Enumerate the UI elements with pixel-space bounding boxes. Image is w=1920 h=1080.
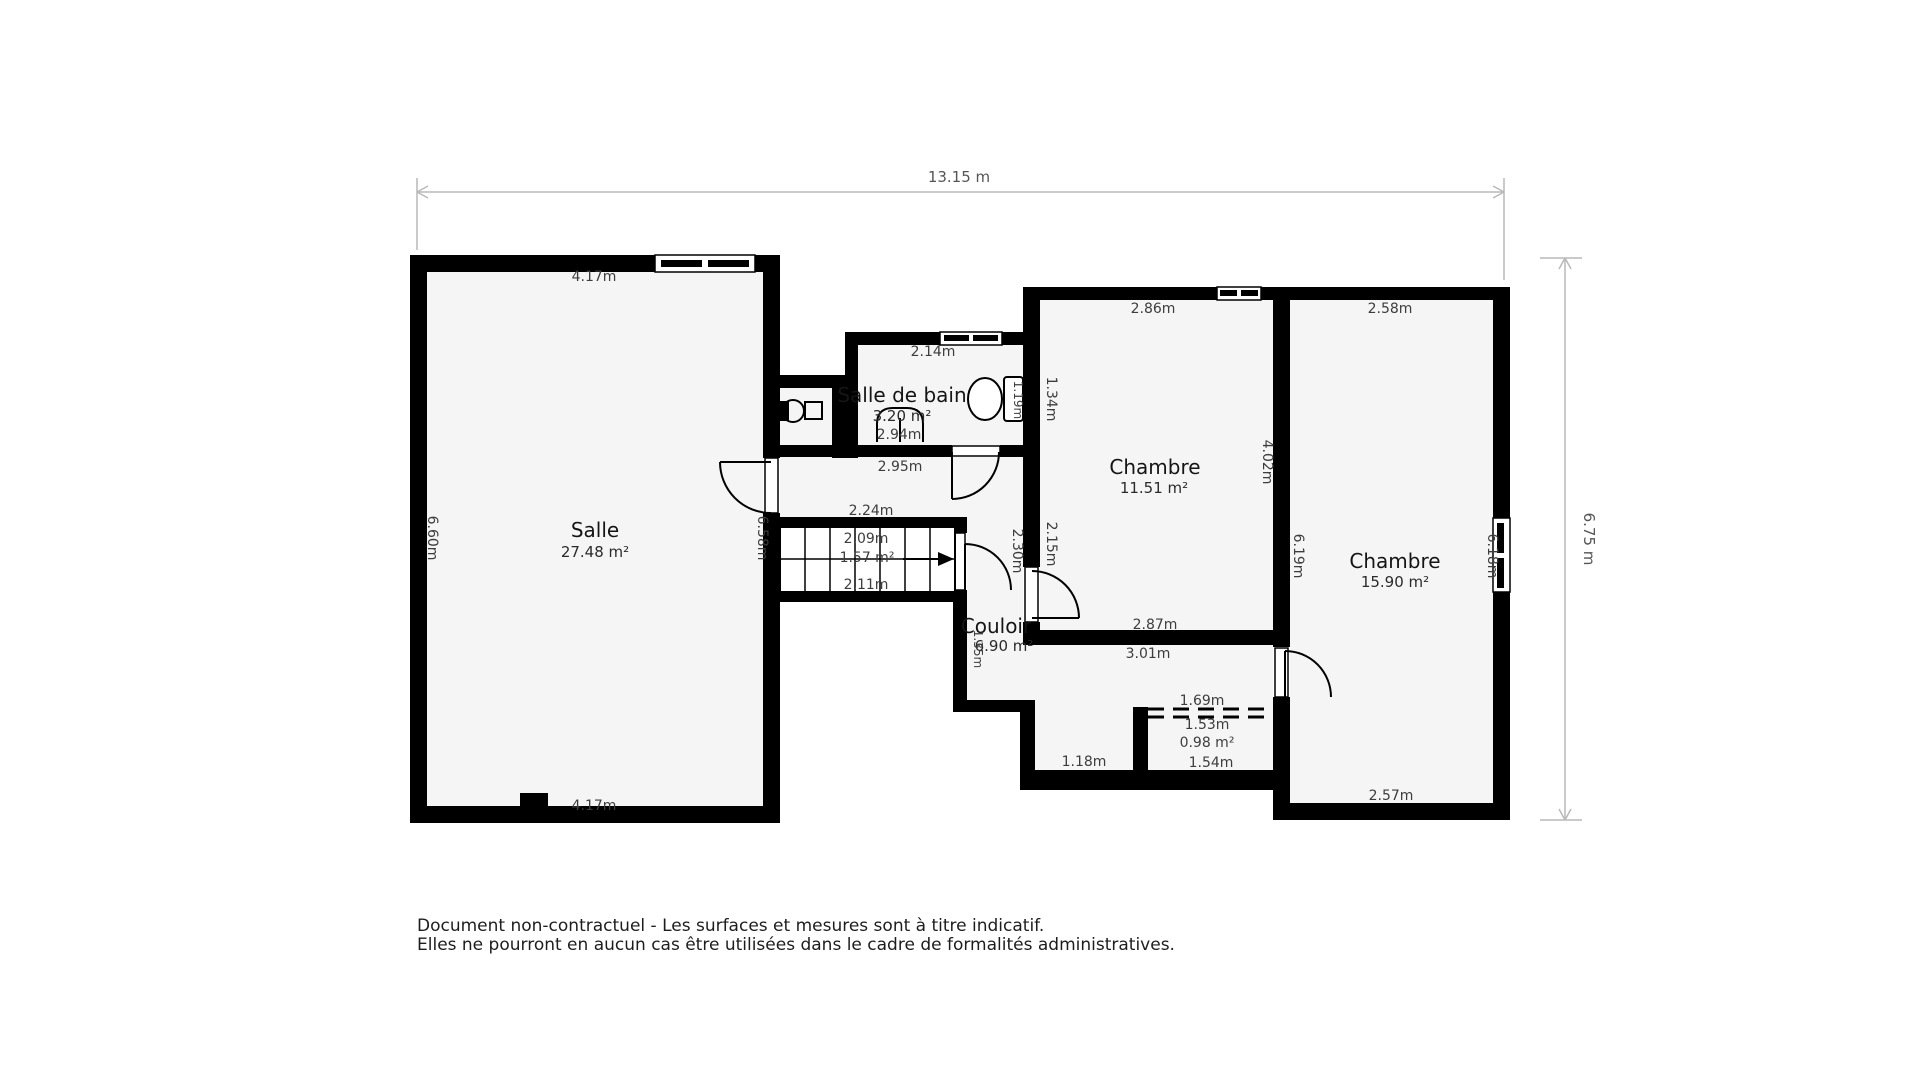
chambre-1-dim-left-upper: 1.34m [1043,377,1059,422]
chambre-2-name-label: Chambre [1349,549,1440,573]
placard-dim-width-bottom: 1.54m [1189,755,1234,771]
couloir-dim-right: 2.30m [1009,529,1025,574]
placard-dim-width-top: 1.53m [1185,717,1230,733]
escalier-area-label: 1.57 m² [840,550,895,566]
salle-window [655,255,755,272]
salle-de-bain-name-label: Salle de bain [837,383,966,407]
chambre-1-area-label: 11.51 m² [1120,479,1188,497]
chambre-1-name-label: Chambre [1109,455,1200,479]
disclaimer-line-2: Elles ne pourront en aucun cas être util… [417,936,1175,955]
chambre-2-dim-left: 6.19m [1290,534,1306,579]
escalier-dim-bottom: 2.11m [844,577,889,593]
chambre-1-dim-top: 2.86m [1131,301,1176,317]
chambre-1-window [1217,287,1261,300]
sdb-dim-top: 2.14m [911,344,956,360]
chambre-2-area-label: 15.90 m² [1361,573,1429,591]
chambre-1-dim-bottom: 2.87m [1133,617,1178,633]
floor-plan-page: Salle 27.48 m² Salle de bain 3.20 m² Cha… [0,0,1920,1080]
couloir-dim-above-stairs: 2.24m [849,503,894,519]
escalier-dim-top: 2.09m [844,531,889,547]
dimension-right [1540,258,1582,820]
couloir-dim-top: 2.95m [878,459,923,475]
salle-dim-right: 6.58m [754,516,770,561]
couloir-dim-south-bottom: 1.18m [1062,754,1107,770]
salle-area-label: 27.48 m² [561,543,629,561]
salle-chimney-notch [520,793,548,809]
closet-partition-wall [1133,707,1148,770]
salle-dim-bottom: 4.17m [572,798,617,814]
salle-name-label: Salle [571,518,619,542]
couloir-dim-left-lower: 1.35m [971,630,985,668]
sdb-dim-bottom: 2.94m [877,427,922,443]
disclaimer-line-1: Document non-contractuel - Les surfaces … [417,917,1175,936]
salle-dim-left: 6.60m [424,516,440,561]
sdb-dim-right: 1.19m [1011,381,1025,419]
couloir-dim-south-top: 3.01m [1126,646,1171,662]
placard-area-label: 0.98 m² [1180,735,1235,751]
salle-dim-top: 4.17m [572,269,617,285]
chambre-1-dim-left-lower: 2.15m [1043,522,1059,567]
chambre-2-dim-bottom: 2.57m [1369,788,1414,804]
chambre-1-dim-right: 4.02m [1259,440,1275,485]
salle-de-bain-area-label: 3.20 m² [873,407,932,425]
dimension-right-label: 6.75 m [1580,513,1598,566]
disclaimer: Document non-contractuel - Les surfaces … [417,917,1175,955]
chambre-2-dim-top: 2.58m [1368,301,1413,317]
placard-dim-top: 1.69m [1180,693,1225,709]
dimension-top-label: 13.15 m [928,168,990,186]
chambre-2-dim-right: 6.18m [1484,534,1500,579]
